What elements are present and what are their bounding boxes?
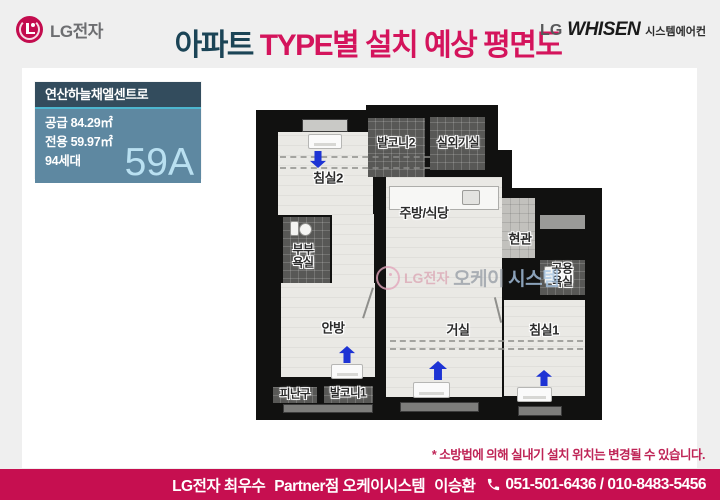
balcony1-window xyxy=(283,404,373,413)
watermark-lg-label: LG전자 xyxy=(404,268,449,288)
phone-icon xyxy=(486,477,501,492)
footer-partner: Partner점 오케이시스템 xyxy=(274,474,425,496)
watermark: LG전자 오케이 시스템 xyxy=(376,264,559,291)
shoe-closet xyxy=(540,215,585,229)
room-label-balcony2: 발코니2 xyxy=(377,136,415,149)
room-entrance-floor xyxy=(502,198,535,258)
watermark-system-label: 시스템 xyxy=(508,264,559,291)
room-label-entrance: 현관 xyxy=(509,233,532,248)
footer-person: 이승환 xyxy=(434,474,475,496)
living-room-window xyxy=(400,402,479,412)
dashed-line xyxy=(390,348,583,350)
lg-symbol-watermark-icon xyxy=(376,266,400,290)
ac-indoor-unit-bedroom2 xyxy=(308,134,342,149)
dashed-line xyxy=(280,167,430,169)
bedroom2-window xyxy=(302,119,348,132)
hallway-floor xyxy=(332,214,374,284)
footer-company: LG전자 최우수 xyxy=(172,474,265,496)
room-label-master-bedroom: 안방 xyxy=(322,322,345,337)
room-label-bedroom2: 침실2 xyxy=(313,172,343,187)
room-label-outdoor-unit: 실외기실 xyxy=(437,136,479,149)
ac-indoor-unit-bedroom1 xyxy=(517,387,552,402)
room-label-kitchen-dining: 주방/식당 xyxy=(400,207,449,222)
footer-contact-bar: LG전자 최우수 Partner점 오케이시스템 이승환 051-501-643… xyxy=(0,469,720,500)
bedroom1-window xyxy=(518,406,562,416)
watermark-okay-label: 오케이 xyxy=(453,264,504,291)
footer-phone-numbers: 051-501-6436 / 010-8483-5456 xyxy=(505,476,706,494)
dashed-line xyxy=(280,156,430,158)
ac-indoor-unit-master-bedroom xyxy=(331,364,363,379)
room-label-balcony1: 발코니1 xyxy=(330,388,366,401)
toilet-icon xyxy=(299,223,312,236)
dashed-line xyxy=(390,340,583,342)
room-label-evacuation: 피난구 xyxy=(280,389,310,402)
floor-plan: 침실2 발코니2 실외기실 주방/식당 현관 공용 욕실 부부 욕실 안방 거실… xyxy=(0,0,720,500)
room-label-master-bathroom: 부부 욕실 xyxy=(292,244,313,271)
footer-phone: 051-501-6436 / 010-8483-5456 xyxy=(486,476,706,494)
room-label-bedroom1: 침실1 xyxy=(529,324,559,339)
room-label-living-room: 거실 xyxy=(447,324,470,339)
cistern-icon xyxy=(290,221,299,236)
ac-indoor-unit-living-room xyxy=(413,382,450,398)
kitchen-sink-icon xyxy=(462,190,480,205)
disclaimer-note: * 소방법에 의해 실내기 설치 위치는 변경될 수 있습니다. xyxy=(432,444,705,463)
